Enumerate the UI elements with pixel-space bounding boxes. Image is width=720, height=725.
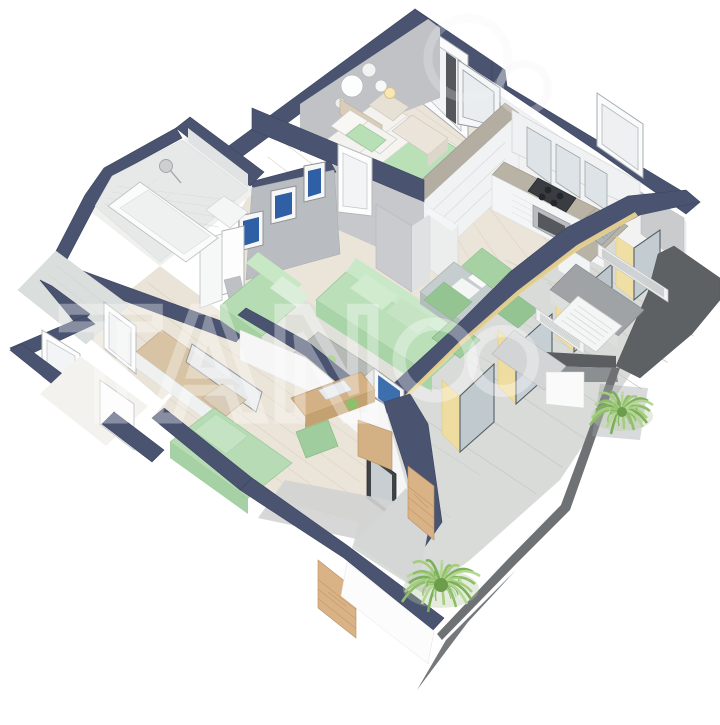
svg-text:TAN: TAN — [63, 276, 388, 452]
